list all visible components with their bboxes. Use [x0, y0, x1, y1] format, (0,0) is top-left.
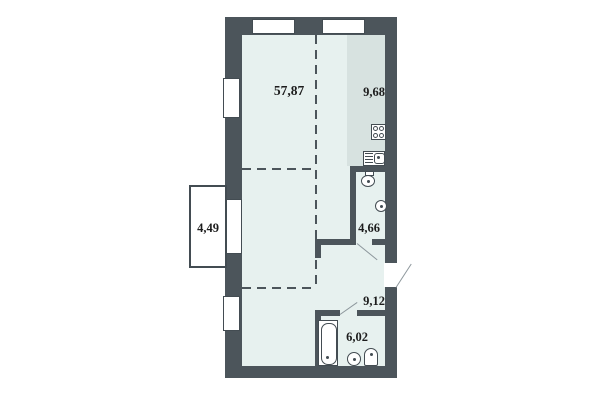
zone-divider-vertical: [315, 35, 317, 288]
kitchen-sink-drainboard-icon: [365, 153, 373, 163]
bathroom-toilet-icon: [364, 348, 378, 366]
kitchen-sink-icon: [363, 151, 385, 166]
wc-washbasin-icon: [375, 200, 387, 212]
kitchen-zone-floor: [347, 35, 385, 166]
room-area-label-living: 57,87: [259, 84, 319, 98]
zone-divider-horizontal-2: [242, 287, 316, 289]
kitchen-faucet-icon: [377, 156, 380, 159]
stove-icon: [371, 124, 386, 140]
room-area-label-hallway: 9,12: [350, 295, 398, 308]
bathroom-washbasin-icon: [347, 352, 361, 366]
window-top-2: [322, 19, 365, 34]
room-area-label-wc: 4,66: [345, 222, 393, 235]
wc-toilet-icon: [361, 175, 375, 187]
bathtub-drain-icon: [326, 356, 329, 359]
floor-plan: 57,87 9,68 4,49 4,66 9,12 6,02: [0, 0, 600, 400]
stove-burner-icon: [373, 133, 378, 138]
wall-top: [225, 17, 397, 35]
wall-wc-bottom-stub: [372, 239, 385, 245]
window-left-lower: [223, 296, 240, 331]
stove-burner-icon: [379, 133, 384, 138]
room-area-label-kitchen: 9,68: [350, 86, 398, 99]
bathroom-washbasin-drain-icon: [353, 358, 356, 361]
window-top-1: [252, 19, 295, 34]
stove-burner-icon: [379, 126, 384, 131]
bathroom-toilet-drain-icon: [370, 353, 373, 356]
wall-wc-bottom: [315, 239, 356, 245]
wc-toilet-drain-icon: [367, 180, 370, 183]
room-area-label-balcony: 4,49: [189, 222, 227, 235]
wall-right: [385, 17, 397, 378]
wall-bottom: [225, 366, 397, 378]
wall-bathroom-top-right: [357, 310, 385, 316]
wc-washbasin-drain-icon: [380, 205, 383, 208]
stove-burner-icon: [373, 126, 378, 131]
room-area-label-bathroom: 6,02: [333, 331, 381, 344]
zone-divider-horizontal-1: [242, 168, 316, 170]
window-left-upper: [223, 78, 240, 118]
entrance-door-opening: [384, 263, 398, 287]
